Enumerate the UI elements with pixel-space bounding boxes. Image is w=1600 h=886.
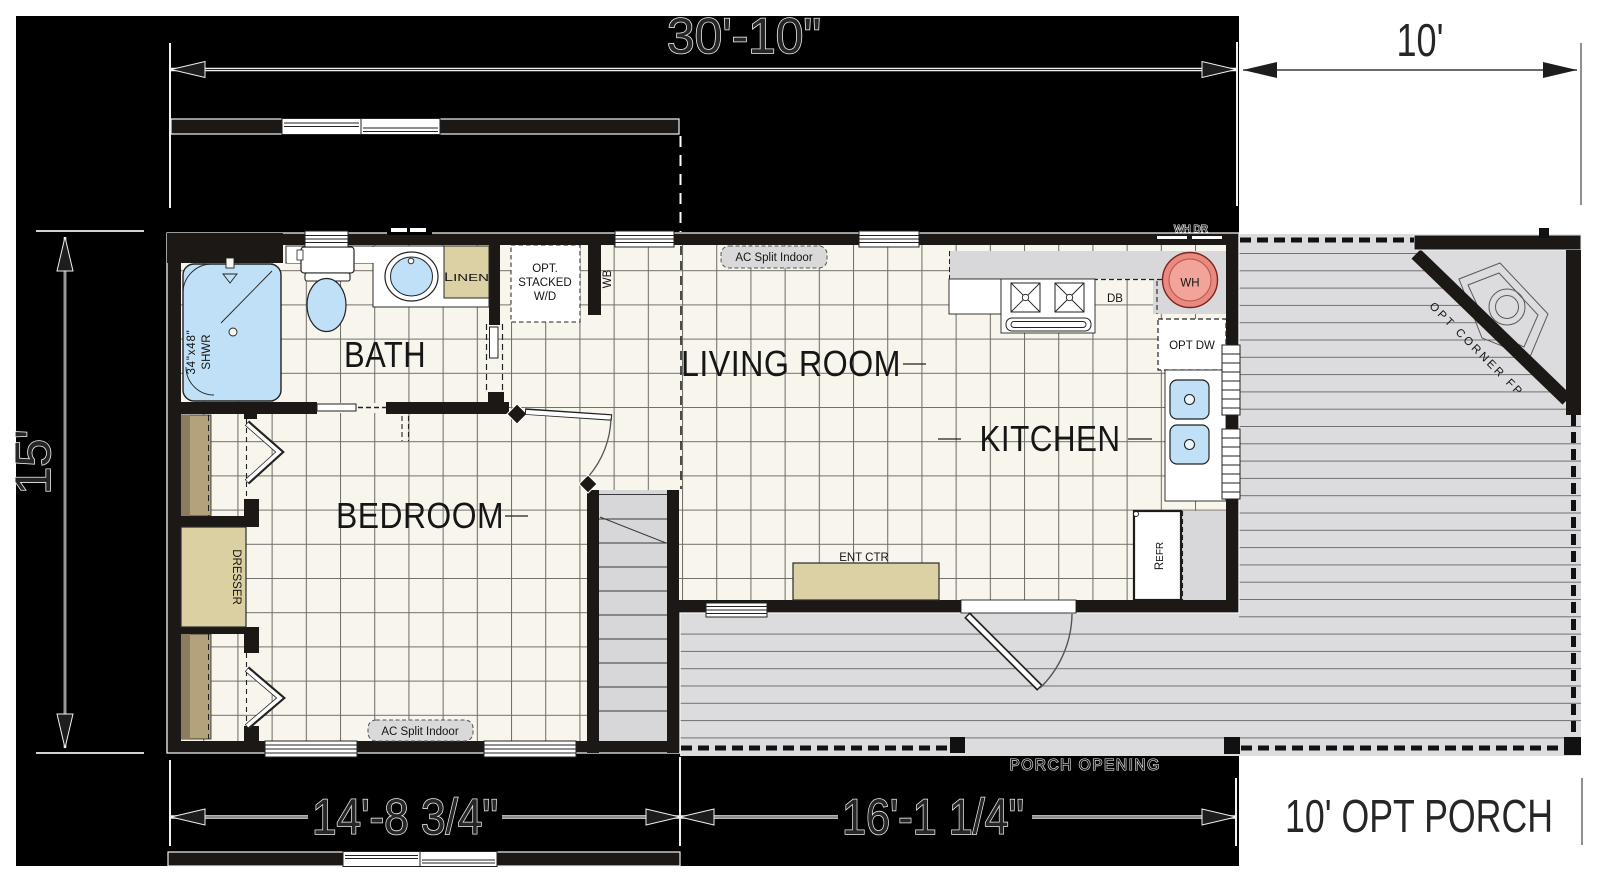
svg-text:LINEN: LINEN <box>444 272 489 284</box>
svg-text:WH: WH <box>1180 278 1199 290</box>
svg-text:BATH: BATH <box>344 334 426 375</box>
svg-text:SHWR: SHWR <box>201 334 213 369</box>
svg-text:WH DR: WH DR <box>1174 224 1208 235</box>
svg-text:OPT.: OPT. <box>532 263 558 275</box>
svg-text:30'-10": 30'-10" <box>667 8 821 64</box>
svg-text:AC Split Indoor: AC Split Indoor <box>381 726 459 738</box>
svg-text:LIVING ROOM: LIVING ROOM <box>681 343 901 384</box>
svg-text:AC Split Indoor: AC Split Indoor <box>735 252 813 264</box>
svg-text:KITCHEN: KITCHEN <box>980 418 1121 459</box>
svg-text:10': 10' <box>1397 14 1444 66</box>
svg-text:34"x48": 34"x48" <box>186 329 198 374</box>
svg-text:OPT DW: OPT DW <box>1169 340 1215 352</box>
svg-text:16'-1 1/4": 16'-1 1/4" <box>842 789 1024 845</box>
svg-text:STACKED: STACKED <box>518 277 571 289</box>
svg-text:10' OPT PORCH: 10' OPT PORCH <box>1285 790 1553 842</box>
svg-text:WB: WB <box>602 269 614 288</box>
svg-text:W/D: W/D <box>534 291 556 303</box>
svg-text:14'-8 3/4": 14'-8 3/4" <box>312 789 498 845</box>
svg-text:REFR: REFR <box>1154 542 1166 570</box>
svg-text:BEDROOM: BEDROOM <box>336 495 504 536</box>
svg-text:DB: DB <box>1107 293 1123 305</box>
svg-text:DRESSER: DRESSER <box>230 549 242 605</box>
svg-text:PORCH OPENING: PORCH OPENING <box>1009 757 1160 774</box>
svg-text:15': 15' <box>5 429 61 494</box>
svg-text:ENT CTR: ENT CTR <box>839 552 889 564</box>
